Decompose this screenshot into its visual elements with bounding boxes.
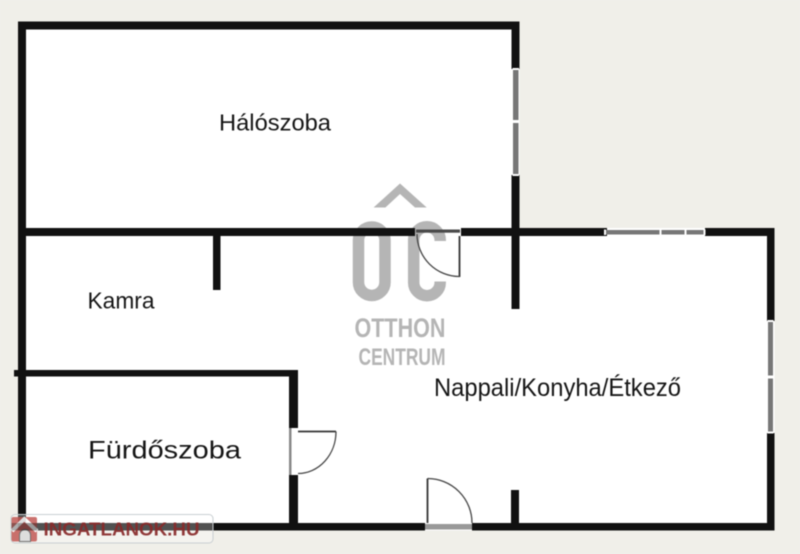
svg-text:Hálószoba: Hálószoba [219, 110, 331, 136]
svg-text:Kamra: Kamra [88, 288, 155, 314]
svg-text:CENTRUM: CENTRUM [359, 344, 446, 371]
svg-text:Fürdőszoba: Fürdőszoba [88, 437, 241, 465]
svg-text:INGATLANOK.HU: INGATLANOK.HU [44, 519, 200, 540]
svg-text:Nappali/Konyha/Étkező: Nappali/Konyha/Étkező [434, 373, 681, 402]
svg-text:OTTHON: OTTHON [355, 313, 446, 343]
